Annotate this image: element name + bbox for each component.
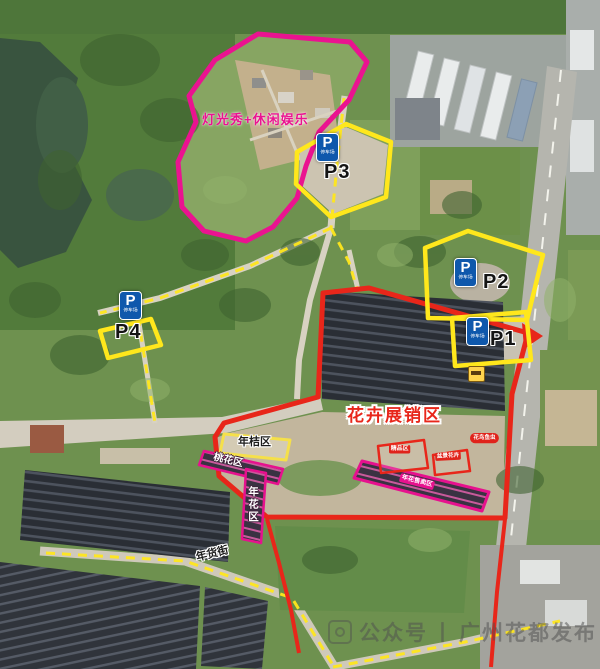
parking-sign-icon: P 停车场 (316, 133, 339, 162)
boutique-zone-badge: 精品区 (389, 445, 410, 454)
parking-sign-icon: P 停车场 (119, 291, 142, 320)
parking-sign-subtext: 停车场 (458, 275, 472, 280)
annotated-satellite-map: 灯光秀+休闲娱乐 P 停车场 P 停车场 P 停车场 P 停车场 P3 P2 P… (0, 0, 600, 669)
parking-sign-letter: P (120, 293, 141, 308)
parking-sign-letter: P (455, 260, 476, 275)
flower-bird-fish-badge: 花鸟鱼虫 (470, 433, 499, 443)
parking-lot-label-p4: P4 (115, 322, 141, 343)
publisher-logo-icon (328, 620, 352, 644)
parking-sign-icon: P 停车场 (454, 258, 477, 287)
kumquat-zone-label: 年桔区 (238, 437, 271, 449)
watermark-account: 广州花都发布 (459, 617, 597, 647)
parking-sign-subtext: 停车场 (320, 150, 334, 155)
parking-sign-subtext: 停车场 (123, 308, 137, 313)
watermark-prefix: 公众号 (359, 617, 428, 647)
new-year-flower-zone-label: 年花区 (247, 486, 258, 524)
parking-lot-label-p1: P1 (490, 329, 516, 350)
parking-lot-label-p3: P3 (324, 162, 350, 183)
parking-sign-letter: P (467, 319, 488, 334)
landmark-poi-icon (468, 366, 485, 382)
watermark: 公众号 丨 广州花都发布 (328, 617, 597, 647)
bonsai-zone-badge: 盆景花卉 (435, 452, 461, 461)
parking-sign-letter: P (317, 135, 338, 150)
light-show-zone-label: 灯光秀+休闲娱乐 (202, 113, 309, 127)
parking-lot-label-p2: P2 (483, 272, 509, 293)
flower-expo-title: 花卉展销区 (347, 407, 442, 425)
watermark-separator: 丨 (432, 617, 455, 647)
parking-sign-icon: P 停车场 (466, 317, 489, 346)
parking-sign-subtext: 停车场 (470, 334, 484, 339)
